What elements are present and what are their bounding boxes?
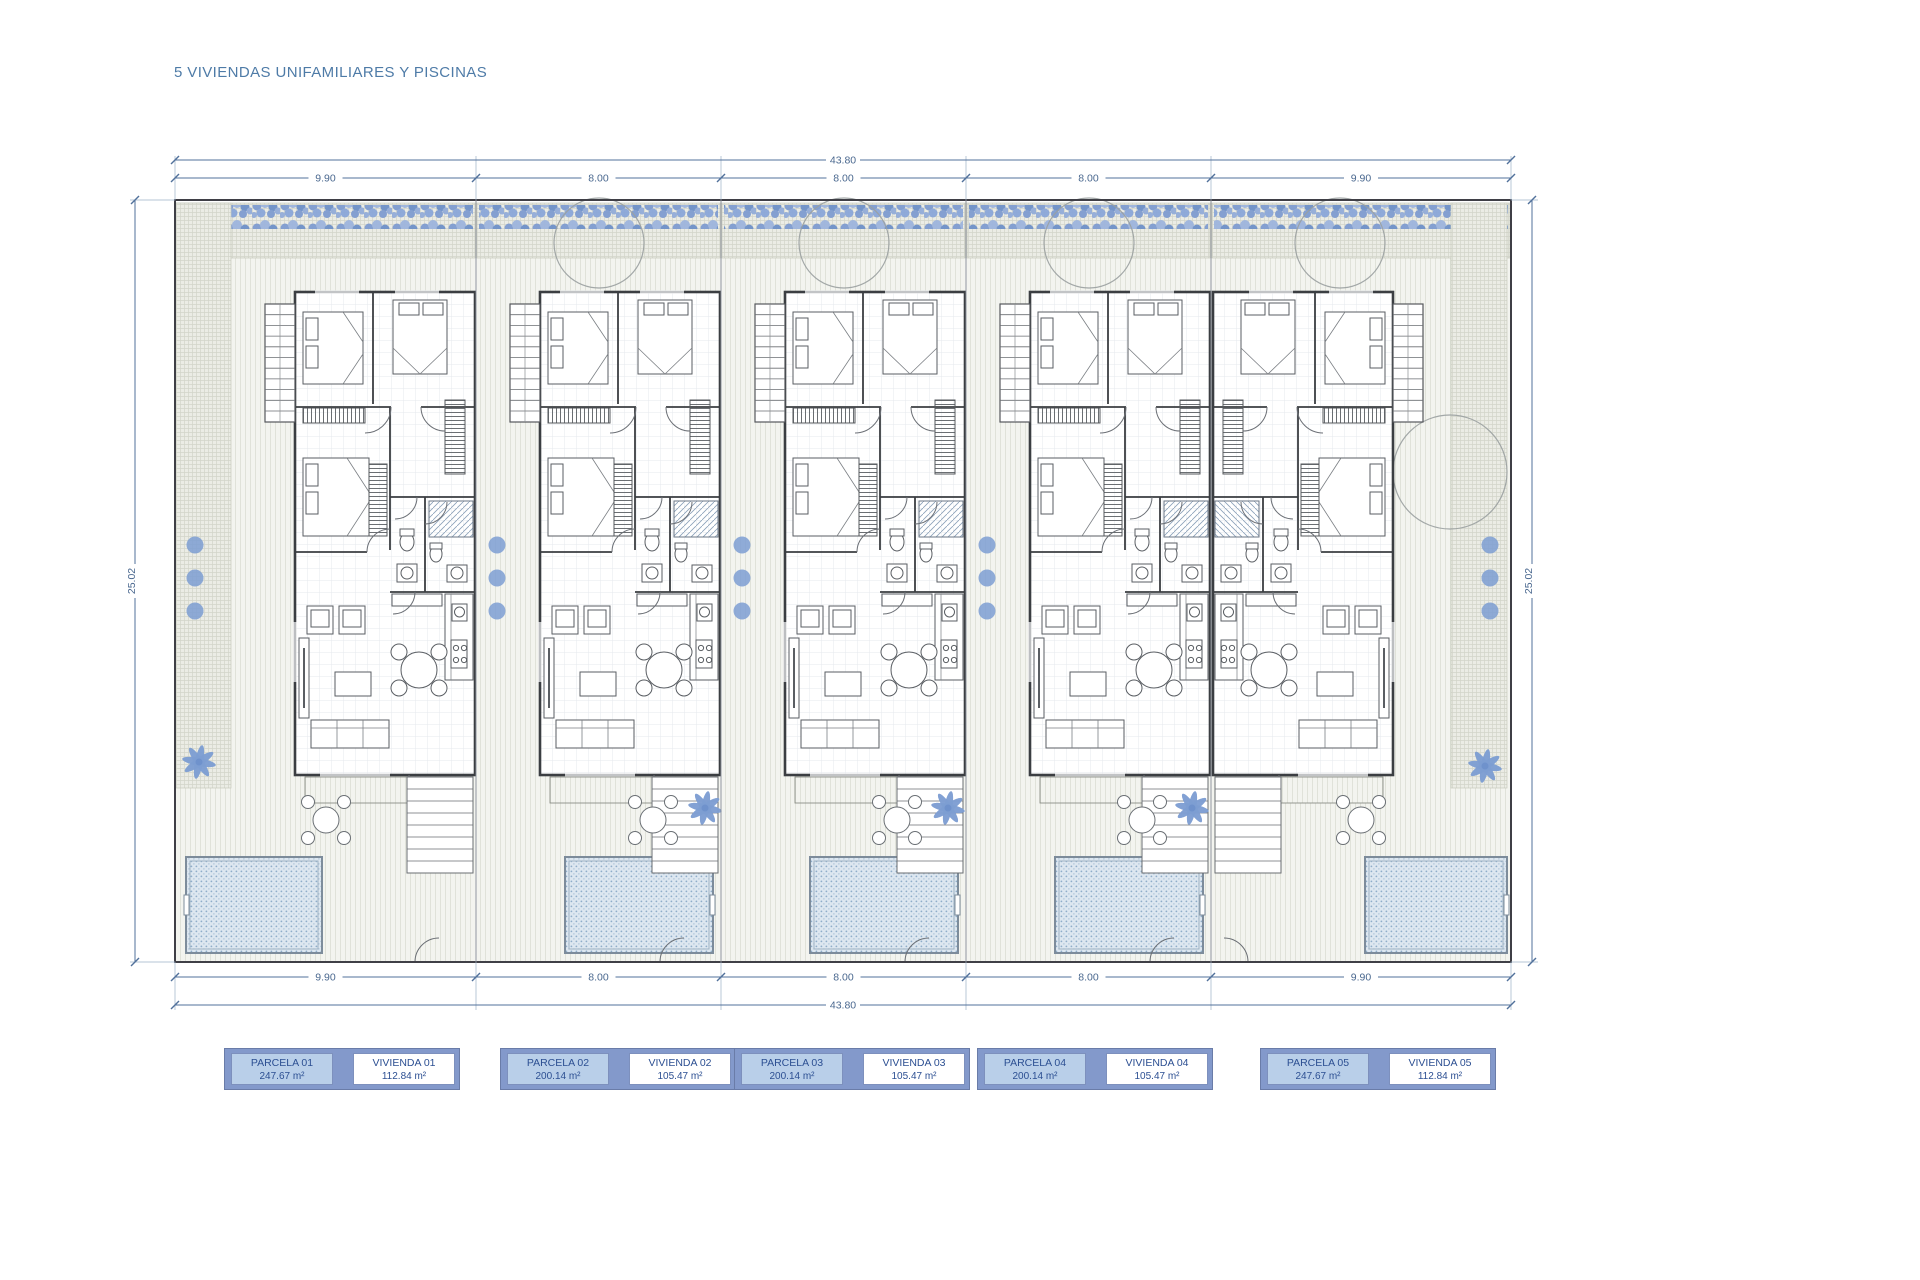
legend-vivienda-04: VIVIENDA 04105.47 m²: [1106, 1053, 1208, 1085]
svg-text:8.00: 8.00: [833, 972, 854, 984]
bush-icon: [1482, 537, 1499, 554]
drawing-sheet: 5 VIVIENDAS UNIFAMILIARES Y PISCINAS: [0, 0, 1920, 1280]
legend-parcela-02: PARCELA 02200.14 m²: [507, 1053, 609, 1085]
bush-icon: [489, 570, 506, 587]
svg-text:8.00: 8.00: [588, 972, 609, 984]
parcela-label: PARCELA 01: [232, 1057, 332, 1069]
legend-parcela-03: PARCELA 03200.14 m²: [741, 1053, 843, 1085]
legend-vivienda-01: VIVIENDA 01112.84 m²: [353, 1053, 455, 1085]
bush-icon: [187, 570, 204, 587]
vivienda-area: 105.47 m²: [1107, 1071, 1207, 1082]
bush-icon: [734, 603, 751, 620]
vivienda-area: 105.47 m²: [864, 1071, 964, 1082]
legend-parcela-01: PARCELA 01247.67 m²: [231, 1053, 333, 1085]
parcela-area: 200.14 m²: [742, 1071, 842, 1082]
legend-group-01: PARCELA 01247.67 m²VIVIENDA 01112.84 m²: [224, 1048, 460, 1090]
bush-icon: [734, 570, 751, 587]
svg-text:8.00: 8.00: [833, 173, 854, 185]
legend-parcela-05: PARCELA 05247.67 m²: [1267, 1053, 1369, 1085]
pool-parcel-05: [1365, 857, 1509, 953]
svg-text:9.90: 9.90: [1351, 173, 1372, 185]
parcela-label: PARCELA 03: [742, 1057, 842, 1069]
bush-icon: [1482, 570, 1499, 587]
parcela-area: 247.67 m²: [232, 1071, 332, 1082]
parcela-label: PARCELA 05: [1268, 1057, 1368, 1069]
vivienda-label: VIVIENDA 04: [1107, 1057, 1207, 1069]
vivienda-area: 112.84 m²: [354, 1071, 454, 1082]
vivienda-area: 105.47 m²: [630, 1071, 730, 1082]
legend-group-03: PARCELA 03200.14 m²VIVIENDA 03105.47 m²: [734, 1048, 970, 1090]
bush-icon: [979, 570, 996, 587]
legend-group-02: PARCELA 02200.14 m²VIVIENDA 02105.47 m²: [500, 1048, 736, 1090]
legend-vivienda-03: VIVIENDA 03105.47 m²: [863, 1053, 965, 1085]
svg-text:9.90: 9.90: [1351, 972, 1372, 984]
legend-vivienda-05: VIVIENDA 05112.84 m²: [1389, 1053, 1491, 1085]
parcela-area: 200.14 m²: [508, 1071, 608, 1082]
vivienda-area: 112.84 m²: [1390, 1071, 1490, 1082]
svg-text:9.90: 9.90: [315, 972, 336, 984]
parcela-label: PARCELA 04: [985, 1057, 1085, 1069]
bush-icon: [734, 537, 751, 554]
bush-icon: [489, 537, 506, 554]
vivienda-label: VIVIENDA 02: [630, 1057, 730, 1069]
parcela-area: 247.67 m²: [1268, 1071, 1368, 1082]
vivienda-label: VIVIENDA 05: [1390, 1057, 1490, 1069]
svg-text:9.90: 9.90: [315, 173, 336, 185]
parcela-area: 200.14 m²: [985, 1071, 1085, 1082]
legend-vivienda-02: VIVIENDA 02105.47 m²: [629, 1053, 731, 1085]
bush-icon: [187, 603, 204, 620]
legend-parcela-04: PARCELA 04200.14 m²: [984, 1053, 1086, 1085]
bush-icon: [1482, 603, 1499, 620]
svg-text:8.00: 8.00: [1078, 173, 1099, 185]
vivienda-label: VIVIENDA 03: [864, 1057, 964, 1069]
svg-text:8.00: 8.00: [588, 173, 609, 185]
bush-icon: [187, 537, 204, 554]
svg-text:8.00: 8.00: [1078, 972, 1099, 984]
pool-parcel-01: [184, 857, 322, 953]
bush-icon: [979, 537, 996, 554]
svg-text:43.80: 43.80: [830, 155, 856, 167]
vivienda-label: VIVIENDA 01: [354, 1057, 454, 1069]
parcela-label: PARCELA 02: [508, 1057, 608, 1069]
legend-group-05: PARCELA 05247.67 m²VIVIENDA 05112.84 m²: [1260, 1048, 1496, 1090]
bush-icon: [489, 603, 506, 620]
legend-group-04: PARCELA 04200.14 m²VIVIENDA 04105.47 m²: [977, 1048, 1213, 1090]
bush-icon: [979, 603, 996, 620]
svg-text:25.02: 25.02: [126, 568, 138, 594]
svg-text:43.80: 43.80: [830, 1000, 856, 1012]
svg-text:25.02: 25.02: [1523, 568, 1535, 594]
